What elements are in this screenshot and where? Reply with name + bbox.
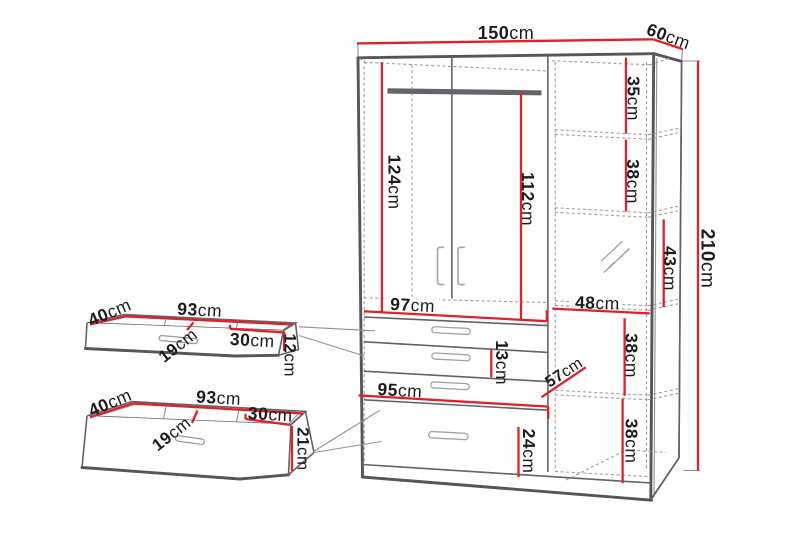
svg-text:35cm: 35cm	[624, 76, 644, 121]
svg-text:21cm: 21cm	[294, 427, 313, 471]
svg-text:93cm: 93cm	[196, 387, 242, 409]
svg-text:38cm: 38cm	[622, 419, 642, 464]
svg-text:48cm: 48cm	[575, 292, 620, 314]
svg-text:30cm: 30cm	[229, 329, 275, 351]
svg-text:43cm: 43cm	[660, 246, 680, 291]
svg-text:124cm: 124cm	[384, 154, 404, 209]
svg-text:24cm: 24cm	[519, 429, 539, 474]
svg-text:30cm: 30cm	[247, 403, 293, 425]
svg-text:97cm: 97cm	[390, 294, 436, 316]
svg-text:95cm: 95cm	[377, 379, 423, 402]
svg-text:150cm: 150cm	[478, 23, 535, 43]
svg-text:12cm: 12cm	[281, 333, 300, 377]
svg-text:38cm: 38cm	[622, 333, 642, 378]
svg-text:210cm: 210cm	[697, 229, 718, 289]
svg-text:93cm: 93cm	[177, 299, 223, 321]
svg-text:112cm: 112cm	[518, 172, 538, 226]
svg-text:13cm: 13cm	[492, 340, 512, 385]
svg-text:38cm: 38cm	[623, 159, 643, 204]
